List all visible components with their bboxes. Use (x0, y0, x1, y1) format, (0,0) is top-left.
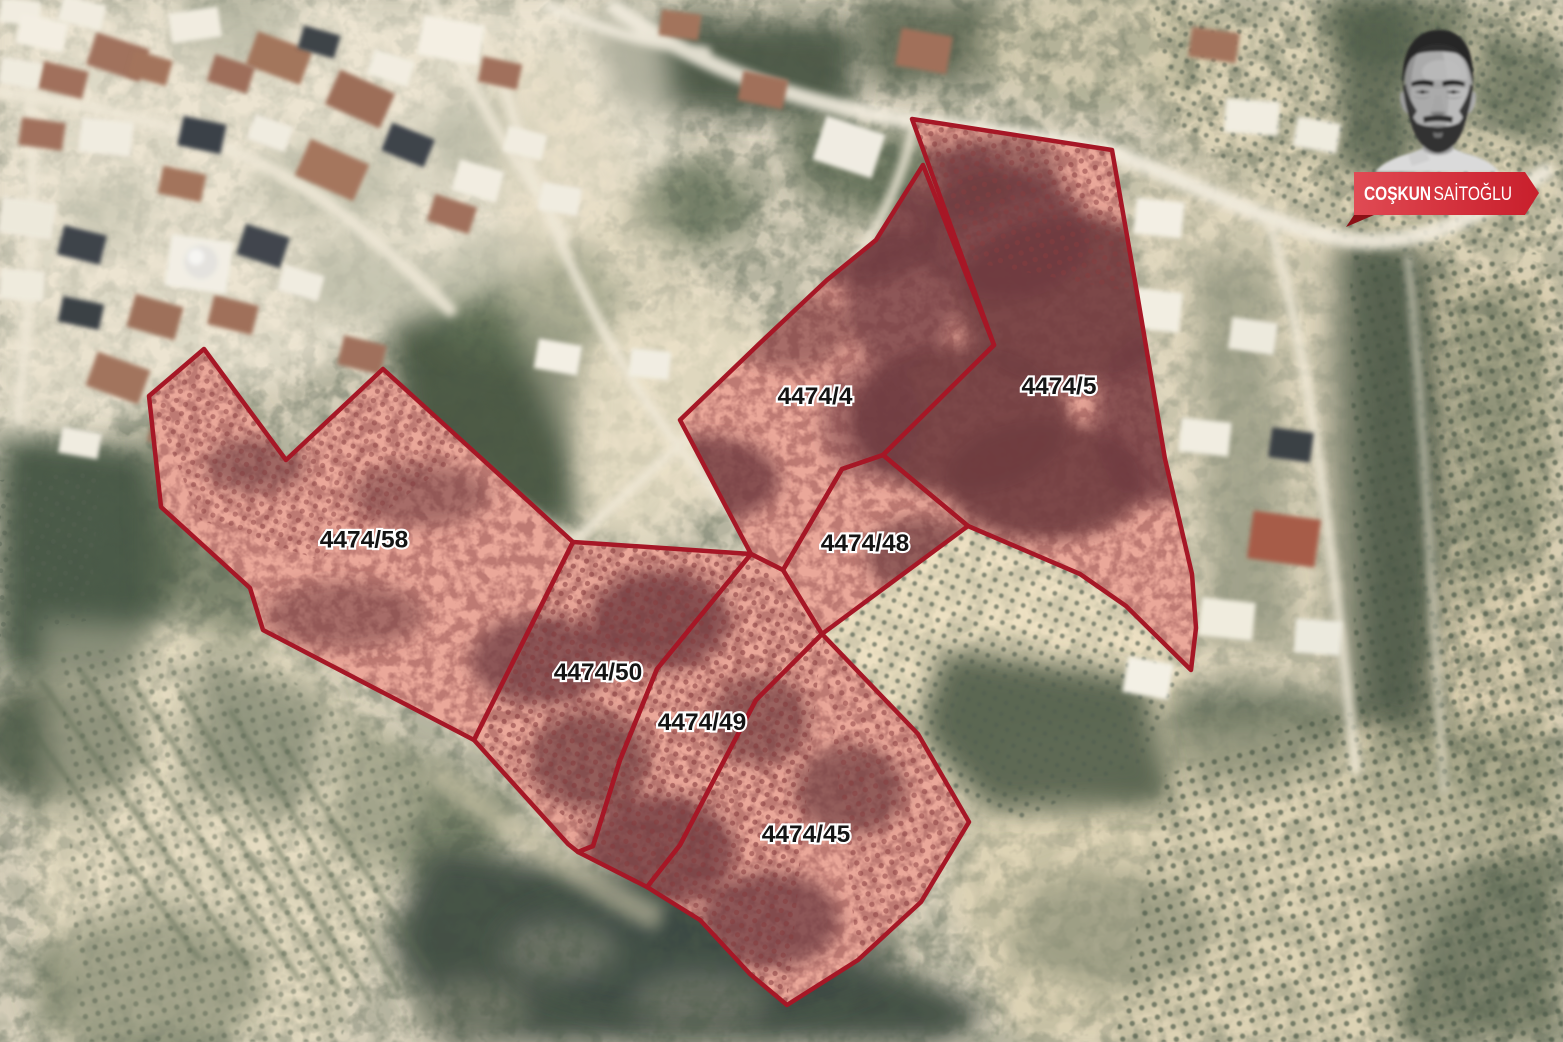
svg-text:4474/50: 4474/50 (554, 659, 643, 686)
svg-text:4474/45: 4474/45 (762, 821, 851, 848)
svg-text:4474/4: 4474/4 (778, 383, 853, 410)
svg-text:4474/49: 4474/49 (658, 709, 747, 736)
svg-text:SAİTOĞLU: SAİTOĞLU (1434, 182, 1513, 205)
svg-text:4474/58: 4474/58 (320, 527, 409, 554)
svg-text:COŞKUN: COŞKUN (1364, 183, 1431, 205)
svg-text:4474/5: 4474/5 (1022, 373, 1097, 400)
svg-text:4474/48: 4474/48 (821, 530, 910, 557)
